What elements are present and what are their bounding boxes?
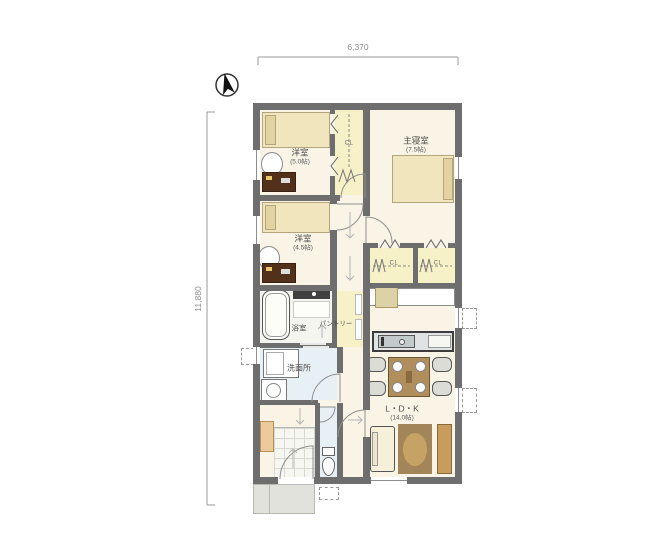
desk-2-item xyxy=(266,267,272,271)
shoe-cabinet xyxy=(260,421,274,452)
kitchen-faucet xyxy=(381,337,384,346)
outdoor-unit-right-1 xyxy=(462,308,477,329)
refrigerator xyxy=(375,286,398,308)
pillow-double xyxy=(443,158,453,200)
closet-label-right: CL xyxy=(434,261,443,268)
wall-segment xyxy=(413,248,418,283)
desk-1-item2 xyxy=(281,178,290,183)
outdoor-unit-toilet xyxy=(319,487,339,500)
room-label-bathroom: 浴室 xyxy=(292,325,307,334)
wall-segment xyxy=(370,283,455,288)
room-name: 主寝室 xyxy=(403,135,429,145)
desk-2-item2 xyxy=(281,269,290,274)
wall-segment xyxy=(330,196,337,204)
window-bottom-living xyxy=(371,477,407,484)
wall-segment xyxy=(315,403,320,477)
wall-segment xyxy=(370,243,378,248)
room-size: (4.5帖) xyxy=(293,244,313,251)
entry-door-opening xyxy=(278,477,314,485)
pantry-shelf-1 xyxy=(355,294,362,315)
toilet-tank xyxy=(322,447,335,456)
kitchen-stove xyxy=(428,335,451,348)
room-label-washroom: 洗面所 xyxy=(287,363,311,372)
wall-segment xyxy=(337,403,343,477)
wall-segment xyxy=(260,195,340,201)
bathtub-inner xyxy=(265,293,287,337)
outdoor-unit-right-2 xyxy=(462,388,477,413)
wall-outer-top xyxy=(253,103,462,110)
dining-chair-4 xyxy=(432,381,452,396)
room-label-bedroom2: 洋室 (4.5帖) xyxy=(293,234,313,251)
room-label-pantry: パントリー xyxy=(320,320,353,327)
porch-step-line xyxy=(269,484,270,514)
wall-segment xyxy=(260,400,318,405)
closet-label-top: CL xyxy=(345,141,354,148)
dimension-left-label: 11,880 xyxy=(193,286,203,311)
wall-segment xyxy=(363,110,370,216)
wall-segment xyxy=(400,243,424,248)
bath-counter-faucet xyxy=(312,292,316,296)
wall-segment xyxy=(330,110,335,114)
wall-segment xyxy=(337,347,343,373)
room-size: (5.0帖) xyxy=(290,158,310,165)
kitchen-drain xyxy=(399,339,405,345)
genkan-tile xyxy=(274,427,315,478)
window-right-kitchen xyxy=(455,308,462,328)
plate-1 xyxy=(392,361,403,372)
washing-machine-drum xyxy=(266,383,281,398)
window-left-3 xyxy=(253,347,260,364)
room-name: 洋室 xyxy=(291,147,308,157)
floor-plan: 6,370 11,880 洋室 (5.0帖) 主寝室 (7.5帖) 洋室 (4.… xyxy=(0,0,660,540)
compass-icon xyxy=(216,72,238,96)
wall-segment xyxy=(330,176,335,195)
room-size: (14.0帖) xyxy=(385,414,419,421)
porch xyxy=(253,484,315,514)
sliding-door-bath-2 xyxy=(303,346,329,348)
desk-1 xyxy=(262,172,296,192)
room-label-bedroom1: 洋室 (5.0帖) xyxy=(290,148,310,165)
desk-2 xyxy=(262,263,296,283)
dimension-top-label: 6,370 xyxy=(347,42,368,52)
wall-segment xyxy=(448,243,455,248)
pillow-2 xyxy=(265,205,276,230)
wall-segment xyxy=(330,230,337,291)
window-right-living xyxy=(455,388,462,412)
pantry-shelf-2 xyxy=(355,319,362,340)
wall-segment xyxy=(363,288,370,347)
room-size: (7.5帖) xyxy=(403,146,429,153)
room-name: 浴室 xyxy=(292,324,307,333)
wall-segment xyxy=(332,285,337,347)
window-left-1 xyxy=(253,150,260,180)
wall-segment xyxy=(260,285,337,291)
plate-2 xyxy=(415,361,426,372)
plate-3 xyxy=(392,382,403,393)
pillow-1 xyxy=(265,115,276,145)
vanity-basin xyxy=(266,352,284,375)
room-name: 洋室 xyxy=(294,233,311,243)
room-label-master: 主寝室 (7.5帖) xyxy=(403,136,429,153)
window-left-2 xyxy=(253,216,260,244)
room-label-ldk: L・D・K (14.0帖) xyxy=(385,404,419,421)
table-centerpiece xyxy=(406,371,412,383)
room-name: L・D・K xyxy=(385,403,419,413)
closet-top-floor xyxy=(335,110,363,195)
closet-label-left: CL xyxy=(390,261,399,268)
room-name: 洗面所 xyxy=(287,363,311,372)
wall-segment xyxy=(363,243,370,288)
bath-mat xyxy=(293,301,330,318)
dining-chair-3 xyxy=(432,357,452,372)
rug-oval xyxy=(403,433,427,466)
sliding-door-bath xyxy=(300,343,326,345)
wall-segment xyxy=(330,134,335,156)
window-right-master xyxy=(455,157,462,179)
sofa-back xyxy=(372,432,378,466)
tv-board xyxy=(437,424,452,474)
wall-segment xyxy=(363,437,370,477)
plate-4 xyxy=(415,382,426,393)
room-name: パントリー xyxy=(320,320,353,327)
desk-1-item xyxy=(266,176,272,180)
wall-segment xyxy=(363,347,370,410)
